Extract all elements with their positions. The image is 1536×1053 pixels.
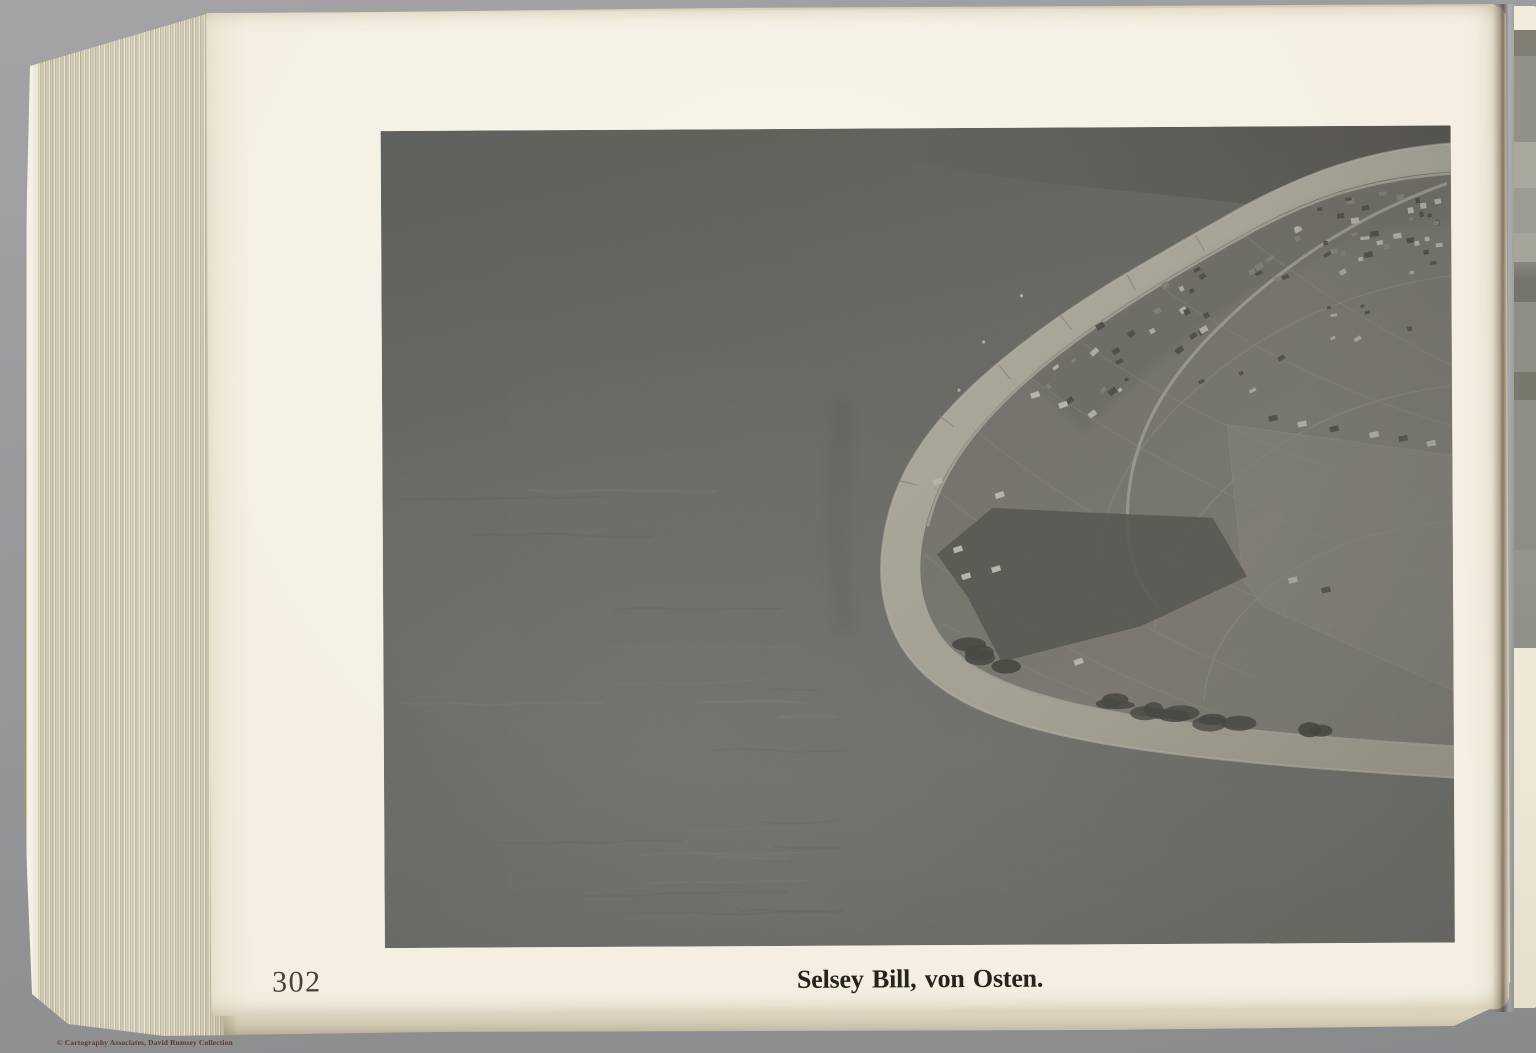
film-grain-light: [381, 125, 1455, 948]
page-stack-fore-edge: [24, 4, 224, 1038]
facing-page-sliver: [1514, 6, 1536, 1008]
facing-page-photo: [1514, 30, 1536, 648]
book-gutter: [1492, 4, 1516, 1012]
photo-caption: Selsey Bill, von Osten.: [385, 961, 1455, 997]
aerial-photo: [381, 125, 1455, 948]
page-number: 302: [272, 965, 322, 999]
book-scan: 302 Selsey Bill, von Osten. © Cartograph…: [0, 0, 1536, 1053]
book-page: 302 Selsey Bill, von Osten.: [206, 6, 1509, 1016]
collection-watermark: © Cartography Associates, David Rumsey C…: [57, 1038, 233, 1047]
